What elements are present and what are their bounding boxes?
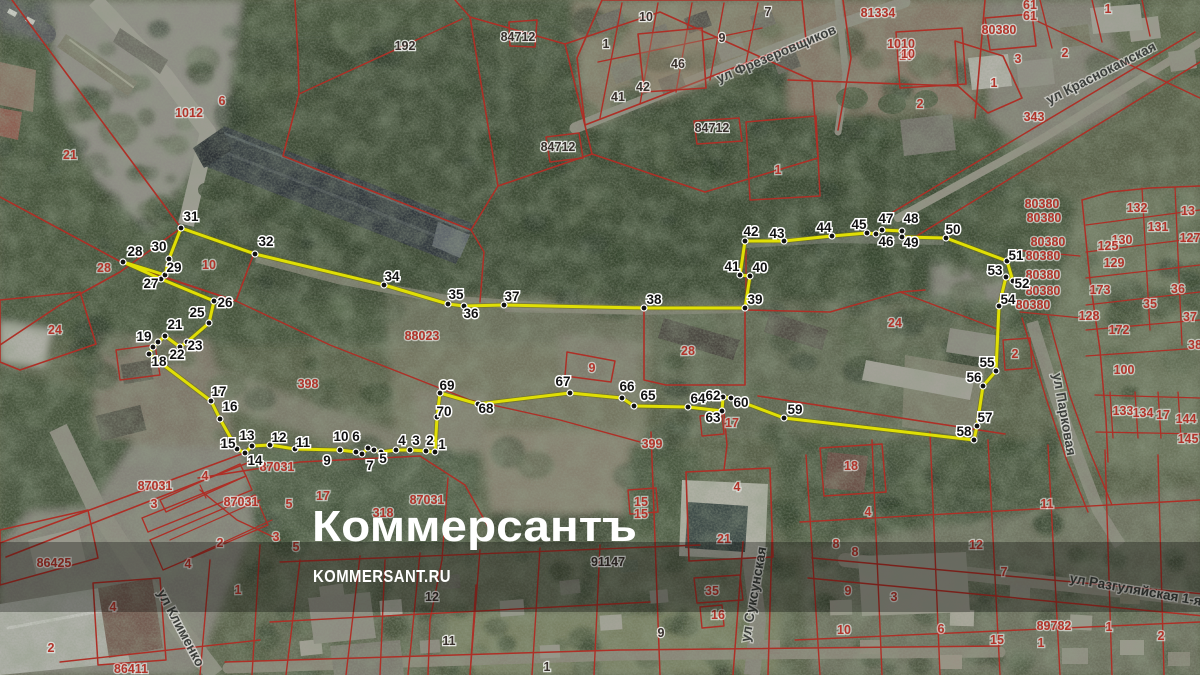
svg-text:80380: 80380 bbox=[982, 23, 1017, 37]
svg-text:44: 44 bbox=[816, 220, 832, 235]
svg-text:84712: 84712 bbox=[695, 121, 730, 135]
svg-text:66: 66 bbox=[619, 379, 635, 394]
svg-text:173: 173 bbox=[1090, 283, 1111, 297]
svg-text:60: 60 bbox=[733, 395, 748, 410]
svg-text:9: 9 bbox=[658, 626, 665, 640]
svg-text:128: 128 bbox=[1079, 309, 1100, 323]
svg-text:69: 69 bbox=[439, 378, 454, 393]
svg-text:18: 18 bbox=[151, 354, 167, 369]
svg-text:24: 24 bbox=[48, 323, 62, 337]
svg-text:9: 9 bbox=[719, 31, 726, 45]
svg-text:4: 4 bbox=[865, 505, 872, 519]
svg-text:15: 15 bbox=[990, 633, 1004, 647]
svg-text:398: 398 bbox=[298, 377, 319, 391]
svg-text:21: 21 bbox=[63, 148, 77, 162]
svg-text:5: 5 bbox=[379, 451, 387, 466]
svg-text:4: 4 bbox=[734, 480, 741, 494]
svg-text:89782: 89782 bbox=[1037, 619, 1072, 633]
svg-text:21: 21 bbox=[167, 317, 183, 332]
svg-text:2: 2 bbox=[1158, 629, 1165, 643]
svg-text:18: 18 bbox=[844, 459, 858, 473]
svg-text:4: 4 bbox=[398, 433, 406, 448]
svg-text:58: 58 bbox=[956, 424, 972, 439]
svg-text:Коммерсантъ: Коммерсантъ bbox=[312, 502, 637, 551]
svg-text:38: 38 bbox=[1188, 338, 1200, 352]
svg-text:17: 17 bbox=[211, 384, 226, 399]
svg-text:10: 10 bbox=[837, 623, 851, 637]
svg-text:7: 7 bbox=[765, 5, 772, 19]
svg-text:12: 12 bbox=[271, 430, 286, 445]
svg-text:80380: 80380 bbox=[1016, 298, 1051, 312]
svg-text:47: 47 bbox=[878, 211, 893, 226]
svg-text:25: 25 bbox=[189, 305, 205, 320]
svg-text:KOMMERSANT.RU: KOMMERSANT.RU bbox=[313, 566, 451, 586]
svg-text:1: 1 bbox=[438, 437, 446, 452]
svg-text:1: 1 bbox=[1105, 2, 1112, 16]
svg-text:50: 50 bbox=[945, 222, 960, 237]
svg-text:32: 32 bbox=[258, 234, 273, 249]
svg-text:59: 59 bbox=[787, 402, 802, 417]
svg-text:35: 35 bbox=[448, 287, 464, 302]
svg-text:5: 5 bbox=[286, 497, 293, 511]
svg-text:62: 62 bbox=[705, 388, 720, 403]
svg-text:11: 11 bbox=[296, 435, 311, 450]
svg-text:41: 41 bbox=[611, 90, 625, 104]
svg-text:68: 68 bbox=[478, 401, 494, 416]
svg-text:36: 36 bbox=[1171, 282, 1185, 296]
svg-text:1: 1 bbox=[1106, 620, 1113, 634]
svg-text:38: 38 bbox=[646, 292, 662, 307]
svg-text:15: 15 bbox=[220, 436, 236, 451]
svg-text:2: 2 bbox=[426, 433, 434, 448]
svg-text:10: 10 bbox=[901, 47, 915, 61]
svg-text:134: 134 bbox=[1133, 406, 1154, 420]
svg-text:65: 65 bbox=[640, 388, 656, 403]
svg-text:1: 1 bbox=[991, 76, 998, 90]
svg-text:80380: 80380 bbox=[1027, 211, 1062, 225]
svg-text:3: 3 bbox=[412, 433, 420, 448]
svg-text:23: 23 bbox=[187, 338, 203, 353]
svg-text:28: 28 bbox=[97, 261, 111, 275]
svg-text:17: 17 bbox=[316, 489, 330, 503]
svg-text:46: 46 bbox=[671, 57, 685, 71]
svg-text:34: 34 bbox=[384, 269, 400, 284]
svg-text:4: 4 bbox=[202, 469, 209, 483]
svg-text:26: 26 bbox=[217, 295, 233, 310]
svg-text:7: 7 bbox=[366, 458, 374, 473]
svg-text:2: 2 bbox=[917, 97, 924, 111]
svg-text:343: 343 bbox=[1024, 110, 1045, 124]
svg-text:54: 54 bbox=[1000, 292, 1016, 307]
svg-text:28: 28 bbox=[127, 244, 143, 259]
svg-text:144: 144 bbox=[1176, 412, 1197, 426]
svg-text:86411: 86411 bbox=[114, 662, 148, 675]
svg-text:70: 70 bbox=[436, 404, 451, 419]
svg-text:10: 10 bbox=[639, 10, 653, 24]
svg-text:6: 6 bbox=[219, 94, 226, 108]
svg-text:49: 49 bbox=[903, 235, 918, 250]
svg-text:14: 14 bbox=[247, 453, 263, 468]
svg-text:80380: 80380 bbox=[1025, 197, 1060, 211]
svg-text:132: 132 bbox=[1127, 201, 1148, 215]
svg-text:28: 28 bbox=[681, 344, 695, 358]
svg-text:56: 56 bbox=[966, 370, 982, 385]
svg-text:42: 42 bbox=[743, 224, 758, 239]
svg-text:45: 45 bbox=[851, 217, 867, 232]
svg-text:2: 2 bbox=[48, 641, 55, 655]
svg-text:37: 37 bbox=[504, 289, 519, 304]
svg-text:53: 53 bbox=[987, 263, 1003, 278]
svg-text:63: 63 bbox=[705, 410, 721, 425]
svg-text:80380: 80380 bbox=[1026, 284, 1061, 298]
svg-text:36: 36 bbox=[463, 306, 479, 321]
svg-text:24: 24 bbox=[888, 316, 902, 330]
svg-text:133: 133 bbox=[1113, 404, 1134, 418]
svg-text:84712: 84712 bbox=[501, 30, 536, 44]
svg-text:1: 1 bbox=[544, 660, 551, 674]
svg-text:17: 17 bbox=[725, 416, 739, 430]
svg-text:2: 2 bbox=[1062, 46, 1069, 60]
svg-text:84712: 84712 bbox=[541, 140, 576, 154]
svg-text:399: 399 bbox=[642, 437, 663, 451]
svg-text:80380: 80380 bbox=[1026, 268, 1061, 282]
svg-text:192: 192 bbox=[395, 39, 416, 53]
svg-text:87031: 87031 bbox=[138, 479, 173, 493]
svg-text:64: 64 bbox=[690, 391, 706, 406]
svg-text:37: 37 bbox=[1183, 310, 1197, 324]
svg-text:67: 67 bbox=[555, 374, 570, 389]
svg-text:125: 125 bbox=[1098, 239, 1119, 253]
svg-text:9: 9 bbox=[589, 361, 596, 375]
svg-text:55: 55 bbox=[979, 355, 995, 370]
svg-text:46: 46 bbox=[878, 234, 894, 249]
svg-text:129: 129 bbox=[1104, 256, 1125, 270]
svg-text:13: 13 bbox=[239, 428, 255, 443]
svg-text:10: 10 bbox=[202, 258, 216, 272]
svg-text:87031: 87031 bbox=[260, 460, 295, 474]
svg-text:35: 35 bbox=[1143, 297, 1157, 311]
svg-text:9: 9 bbox=[323, 453, 331, 468]
svg-text:127: 127 bbox=[1180, 231, 1200, 245]
svg-text:39: 39 bbox=[747, 292, 762, 307]
svg-text:6: 6 bbox=[938, 622, 945, 636]
svg-text:57: 57 bbox=[977, 410, 992, 425]
svg-text:41: 41 bbox=[724, 259, 740, 274]
svg-text:19: 19 bbox=[136, 329, 151, 344]
svg-text:172: 172 bbox=[1109, 323, 1130, 337]
svg-text:1: 1 bbox=[775, 163, 782, 177]
svg-text:40: 40 bbox=[752, 260, 767, 275]
svg-text:3: 3 bbox=[151, 497, 158, 511]
svg-text:10: 10 bbox=[333, 429, 348, 444]
svg-text:80380: 80380 bbox=[1031, 235, 1066, 249]
svg-text:3: 3 bbox=[273, 530, 280, 544]
svg-text:52: 52 bbox=[1014, 276, 1029, 291]
svg-text:100: 100 bbox=[1114, 363, 1135, 377]
svg-text:145: 145 bbox=[1178, 432, 1199, 446]
svg-text:48: 48 bbox=[903, 211, 919, 226]
svg-text:6: 6 bbox=[352, 429, 360, 444]
svg-text:43: 43 bbox=[769, 226, 785, 241]
svg-text:17: 17 bbox=[1156, 408, 1170, 422]
svg-text:3: 3 bbox=[1015, 52, 1022, 66]
svg-text:11: 11 bbox=[442, 634, 455, 648]
svg-text:131: 131 bbox=[1148, 220, 1169, 234]
svg-text:1: 1 bbox=[603, 37, 610, 51]
svg-text:30: 30 bbox=[151, 239, 166, 254]
svg-text:1012: 1012 bbox=[175, 106, 203, 120]
svg-text:29: 29 bbox=[166, 260, 181, 275]
svg-text:42: 42 bbox=[636, 80, 650, 94]
svg-text:16: 16 bbox=[222, 399, 238, 414]
svg-text:1: 1 bbox=[1038, 636, 1045, 650]
svg-text:31: 31 bbox=[183, 209, 199, 224]
svg-text:81334: 81334 bbox=[861, 6, 896, 20]
svg-text:88023: 88023 bbox=[405, 329, 440, 343]
svg-text:80380: 80380 bbox=[1026, 249, 1061, 263]
svg-text:2: 2 bbox=[1012, 347, 1019, 361]
svg-text:22: 22 bbox=[169, 347, 184, 362]
svg-text:27: 27 bbox=[143, 276, 158, 291]
svg-text:11: 11 bbox=[1040, 497, 1053, 511]
svg-text:13: 13 bbox=[1181, 204, 1195, 218]
svg-text:87031: 87031 bbox=[224, 495, 259, 509]
svg-text:51: 51 bbox=[1008, 248, 1024, 263]
svg-text:61: 61 bbox=[1023, 9, 1037, 23]
